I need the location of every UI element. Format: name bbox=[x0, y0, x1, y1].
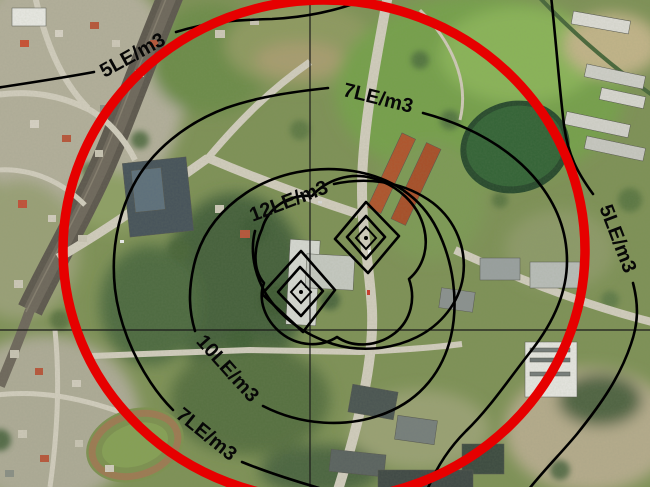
odour-dispersion-map: 5LE/m3 7LE/m3 12LE/m3 10LE/m3 7LE/m3 5LE… bbox=[0, 0, 650, 487]
aerial-basemap bbox=[0, 0, 650, 487]
photo-grain bbox=[0, 0, 650, 487]
